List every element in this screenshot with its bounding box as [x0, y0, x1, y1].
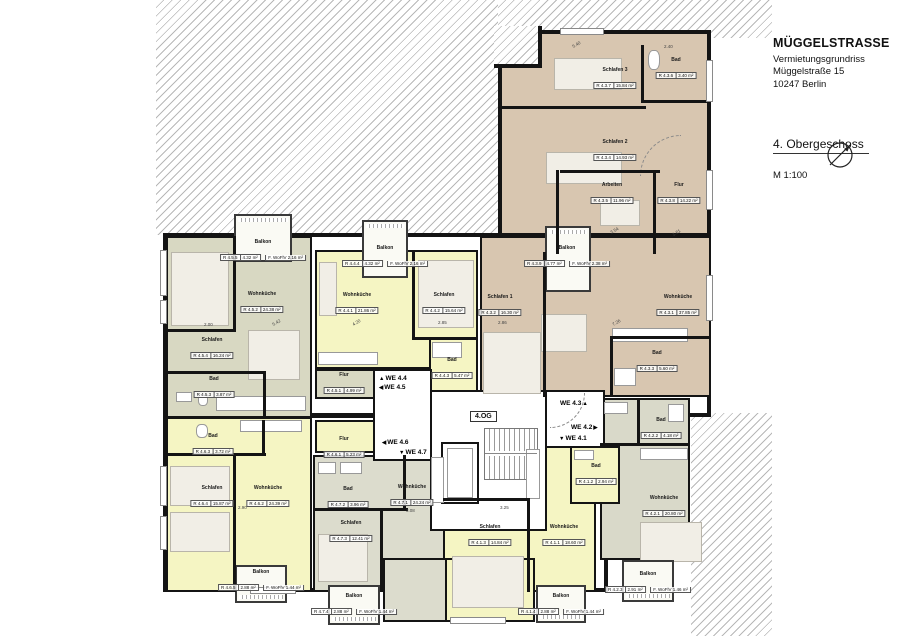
- wing-corner-notch: [494, 26, 542, 68]
- wall: [556, 170, 559, 254]
- arrow-left-icon: ◀: [379, 385, 383, 391]
- window: [160, 516, 167, 550]
- arrow-left-icon: ◀: [382, 440, 386, 446]
- wall: [641, 45, 644, 103]
- unit-marker-we46: ◀ WE 4.6: [382, 439, 409, 446]
- corridor-left: [373, 369, 432, 461]
- room-label-balkon-we42: Balkon R 4.2.32.91 m² F. WoFlV 1.46 m²: [605, 572, 691, 596]
- sink: [340, 462, 362, 474]
- title-block: MÜGGELSTRASSE Vermietungsgrundriss Mügge…: [773, 36, 893, 181]
- bathtub: [318, 462, 336, 474]
- room-label-schlafen-we44: Schlafen R 4.4.215.64 m²: [422, 293, 465, 317]
- address-city: 10247 Berlin: [773, 79, 893, 91]
- dimension-label: 2.00: [204, 322, 213, 327]
- hatch-neighbor-top-left: [156, 0, 498, 235]
- room-label-bad-we43: Bad R 4.3.35.60 m²: [637, 351, 678, 375]
- wall: [500, 106, 646, 109]
- arrow-up-icon: ▲: [582, 401, 587, 407]
- room-label-schlafen2-we43: Schlafen 2 R 4.3.414.93 m²: [593, 140, 636, 164]
- wall: [263, 373, 266, 417]
- bed: [452, 556, 524, 608]
- balcony-railing: [239, 595, 283, 599]
- room-label-bad-we44: Bad R 4.4.35.47 m²: [432, 358, 473, 382]
- wall: [610, 336, 613, 397]
- unit-marker-we44: ▲ WE 4.4: [379, 375, 407, 382]
- sink: [604, 402, 628, 414]
- arrow-down-icon: ▼: [559, 436, 564, 442]
- wall: [637, 400, 640, 445]
- room-label-balkon-we41: Balkon R 4.1.42.88 m² F. WoFlV 1.44 m²: [518, 594, 604, 618]
- room-label-arbeiten-we43: Arbeiten R 4.3.511.96 m²: [591, 183, 634, 207]
- window: [706, 60, 713, 102]
- bed: [170, 512, 230, 552]
- wall: [527, 500, 530, 592]
- unit-marker-we42: WE 4.2 ▶: [571, 424, 598, 431]
- shower: [432, 342, 462, 358]
- scale-label: M 1:100: [773, 170, 807, 181]
- floor-tag: 4.OG: [470, 411, 497, 422]
- window: [160, 466, 167, 506]
- room-label-bad-we42: Bad R 4.2.24.18 m²: [641, 418, 682, 442]
- hatch-neighbor-bottom-right: [691, 413, 772, 636]
- room-label-balkon-we43: Balkon R 4.3.94.77 m² F. WoFlV 2.38 m²: [524, 246, 610, 270]
- unit-marker-we47: ▼ WE 4.7: [399, 449, 427, 456]
- arrow-down-icon: ▼: [399, 450, 404, 456]
- kitchen-counter: [240, 420, 302, 432]
- dimension-label: 2.85: [438, 320, 447, 325]
- room-label-schlafen3-we43: Schlafen 3 R 4.3.715.84 m²: [593, 68, 636, 92]
- unit-marker-we45: ◀ WE 4.5: [379, 384, 406, 391]
- room-label-flur-we46: Flur R 4.6.15.23 m²: [324, 437, 365, 461]
- wall: [166, 371, 266, 374]
- room-label-wohnkueche-we41: Wohnküche R 4.1.118.60 m²: [542, 525, 585, 549]
- room-label-balkon-we45: Balkon R 4.5.54.32 m² F. WoFlV 2.16 m²: [220, 240, 306, 264]
- room-label-balkon-we44: Balkon R 4.4.44.32 m² F. WoFlV 2.16 m²: [342, 246, 428, 270]
- arrow-up-icon: ▲: [379, 376, 384, 382]
- bathtub: [614, 368, 636, 386]
- dimension-label: 2.40: [664, 44, 673, 49]
- room-label-bad-we41: Bad R 4.1.22.94 m²: [576, 464, 617, 488]
- wall: [262, 420, 265, 456]
- room-label-bad-we45: Bad R 4.5.33.87 m²: [194, 377, 235, 401]
- wall: [610, 336, 711, 339]
- kitchen-counter: [640, 448, 688, 460]
- stair-rail: [485, 453, 537, 454]
- room-label-bad2-we43: Bad R 4.3.63.40 m²: [656, 58, 697, 82]
- floorplan-canvas: 4.OG: [0, 0, 900, 636]
- window: [160, 300, 167, 324]
- wall: [600, 443, 690, 446]
- wall: [412, 337, 478, 340]
- project-title: MÜGGELSTRASSE: [773, 36, 893, 50]
- wall: [641, 100, 711, 103]
- dining-table: [541, 314, 587, 352]
- sink: [176, 392, 192, 402]
- room-label-wohnkueche-we46: Wohnküche R 4.6.224.39 m²: [246, 486, 289, 510]
- window: [706, 275, 713, 321]
- room-label-wohnkueche-we43: Wohnküche R 4.3.137.85 m²: [656, 295, 699, 319]
- wall: [380, 508, 383, 592]
- wall: [560, 170, 660, 173]
- dimension-label: 3.25: [500, 505, 509, 510]
- balcony-railing: [238, 218, 288, 222]
- elevator-car: [447, 448, 473, 498]
- dimension-label: 2.86: [498, 320, 507, 325]
- room-label-flur-we45: Flur R 4.5.14.99 m²: [324, 373, 365, 397]
- window: [560, 28, 604, 35]
- arrow-right-icon: ▶: [593, 425, 597, 431]
- room-label-flur-we43: Flur R 4.3.814.22 m²: [657, 183, 700, 207]
- kitchen-counter: [318, 352, 378, 365]
- room-label-schlafen1-we43: Schlafen 1 R 4.3.216.30 m²: [478, 295, 521, 319]
- window: [706, 170, 713, 210]
- wall: [653, 170, 656, 254]
- room-label-bad-we47: Bad R 4.7.23.96 m²: [328, 487, 369, 511]
- room-label-wohnkueche-we45: Wohnküche R 4.5.224.38 m²: [240, 292, 283, 316]
- wall: [543, 252, 546, 397]
- address-street: Müggelstraße 15: [773, 66, 893, 78]
- balcony-railing: [366, 224, 404, 228]
- north-arrow-icon: [825, 140, 855, 170]
- room-label-wohnkueche-we47: Wohnküche R 4.7.124.24 m²: [390, 485, 433, 509]
- balcony-railing: [549, 230, 587, 234]
- bed: [640, 522, 702, 562]
- room-label-schlafen-we41: Schlafen R 4.1.314.84 m²: [468, 525, 511, 549]
- room-label-balkon-we46: Balkon R 4.6.52.88 m² F. WoFlV 1.44 m²: [218, 570, 304, 594]
- room-label-balkon-we47: Balkon R 4.7.42.88 m² F. WoFlV 1.44 m²: [311, 594, 397, 618]
- sofa: [319, 262, 337, 316]
- room-label-schlafen-we46: Schlafen R 4.6.415.87 m²: [190, 486, 233, 510]
- wall: [443, 498, 530, 501]
- kitchen-counter: [526, 449, 540, 499]
- unit-marker-we43: WE 4.3 ▲: [560, 400, 588, 407]
- room-label-wohnkueche-we42: Wohnküche R 4.2.120.80 m²: [642, 496, 685, 520]
- bed: [483, 332, 541, 394]
- plan-type: Vermietungsgrundriss: [773, 54, 893, 66]
- room-label-schlafen-we45: Schlafen R 4.5.416.24 m²: [190, 338, 233, 362]
- room-label-wohnkueche-we44: Wohnküche R 4.4.121.86 m²: [335, 293, 378, 317]
- room-label-bad-we46: Bad R 4.6.33.72 m²: [193, 434, 234, 458]
- kitchen-counter: [612, 328, 688, 342]
- unit-marker-we41: ▼ WE 4.1: [559, 435, 587, 442]
- window: [160, 250, 167, 296]
- wall: [166, 329, 236, 332]
- window: [450, 617, 506, 624]
- sink: [574, 450, 594, 460]
- room-label-schlafen-we47: Schlafen R 4.7.312.41 m²: [329, 521, 372, 545]
